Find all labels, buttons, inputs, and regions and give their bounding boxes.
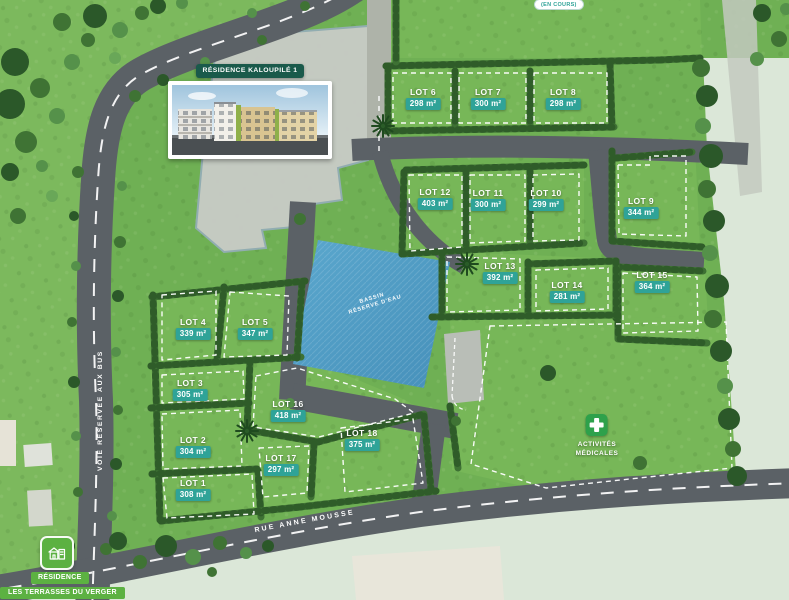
lot-name: LOT 8 [550, 87, 576, 97]
lot-name: LOT 11 [473, 188, 504, 198]
lot-name: LOT 9 [628, 196, 654, 206]
shed-west-3 [0, 420, 16, 466]
building-illustration [172, 85, 328, 155]
lot-name: LOT 5 [242, 317, 268, 327]
residence-kaloupile-title: RÉSIDENCE KALOUPILÉ 1 [196, 64, 305, 78]
residence-photo [168, 81, 332, 159]
lot-name: LOT 3 [177, 378, 203, 388]
bus-lane-label: VOIE RÉSERVÉE AUX BUS [95, 350, 104, 471]
lot-area-badge: 300 m² [471, 98, 506, 110]
lot-name: LOT 1 [180, 478, 206, 488]
medical-label: ACTIVITÉS MÉDICALES [576, 440, 619, 458]
lot-label-12: LOT 12403 m² [418, 187, 453, 210]
lot-area-badge: 304 m² [176, 446, 211, 458]
lot-area-badge: 364 m² [635, 281, 670, 293]
lot-name: LOT 2 [180, 435, 206, 445]
lot-area-badge: 308 m² [176, 489, 211, 501]
medical-cross-icon [586, 414, 608, 436]
lot-label-1: LOT 1308 m² [176, 478, 211, 501]
lot-name: LOT 17 [265, 453, 296, 463]
lot-label-11: LOT 11300 m² [471, 188, 506, 211]
residence-badge-line2: LES TERRASSES DU VERGER [0, 587, 125, 599]
lot-name: LOT 15 [636, 270, 667, 280]
shed-west-1 [23, 443, 52, 467]
lot-area-badge: 339 m² [176, 328, 211, 340]
medical-label-line2: MÉDICALES [576, 449, 619, 458]
lot-area-badge: 392 m² [483, 272, 518, 284]
lot-label-18: LOT 18375 m² [345, 428, 380, 451]
lot-label-9: LOT 9344 m² [624, 196, 659, 219]
lot-name: LOT 10 [530, 188, 561, 198]
lot-area-badge: 297 m² [264, 464, 299, 476]
lot-area-badge: 298 m² [546, 98, 581, 110]
lot-area-badge: 305 m² [173, 389, 208, 401]
lot-label-17: LOT 17297 m² [264, 453, 299, 476]
lot-area-badge: 299 m² [529, 199, 564, 211]
lot-name: LOT 12 [419, 187, 450, 197]
lot-area-badge: 375 m² [345, 439, 380, 451]
lot-label-7: LOT 7300 m² [471, 87, 506, 110]
lot-area-badge: 403 m² [418, 198, 453, 210]
lot-area-badge: 418 m² [271, 410, 306, 422]
water-basin [293, 240, 450, 388]
lot-name: LOT 13 [484, 261, 515, 271]
lot-name: LOT 6 [410, 87, 436, 97]
residence-badge-line1: RÉSIDENCE [31, 572, 89, 584]
site-plan: VOIE RÉSERVÉE AUX BUS RUE ANNE MOUSSE BA… [0, 0, 789, 600]
lot-area-badge: 281 m² [550, 291, 585, 303]
residence-icon [40, 536, 74, 570]
lot-label-13: LOT 13392 m² [483, 261, 518, 284]
lot-label-4: LOT 4339 m² [176, 317, 211, 340]
lot-label-3: LOT 3305 m² [173, 378, 208, 401]
lot-name: LOT 16 [272, 399, 303, 409]
lot-label-16: LOT 16418 m² [271, 399, 306, 422]
lot-name: LOT 14 [551, 280, 582, 290]
lot-name: LOT 4 [180, 317, 206, 327]
residence-kaloupile-card: RÉSIDENCE KALOUPILÉ 1 [168, 64, 332, 159]
lot-label-6: LOT 6298 m² [406, 87, 441, 110]
lot-label-15: LOT 15364 m² [635, 270, 670, 293]
lot-label-14: LOT 14281 m² [550, 280, 585, 303]
shed-west-2 [27, 489, 53, 526]
house-icon [46, 542, 68, 564]
medical-label-line1: ACTIVITÉS [576, 440, 619, 449]
lot-area-badge: 298 m² [406, 98, 441, 110]
status-badge: (EN COURS) [534, 0, 584, 10]
lot-label-5: LOT 5347 m² [238, 317, 273, 340]
lot-area-badge: 347 m² [238, 328, 273, 340]
lot-name: LOT 7 [475, 87, 501, 97]
medical-activities: ACTIVITÉS MÉDICALES [576, 414, 619, 458]
lot-label-10: LOT 10299 m² [529, 188, 564, 211]
lot-label-8: LOT 8298 m² [546, 87, 581, 110]
lot-area-badge: 300 m² [471, 199, 506, 211]
lot-name: LOT 18 [346, 428, 377, 438]
lot-label-2: LOT 2304 m² [176, 435, 211, 458]
site-plan-canvas: VOIE RÉSERVÉE AUX BUS RUE ANNE MOUSSE BA… [0, 0, 789, 600]
parking-area [444, 330, 484, 404]
lot-area-badge: 344 m² [624, 207, 659, 219]
